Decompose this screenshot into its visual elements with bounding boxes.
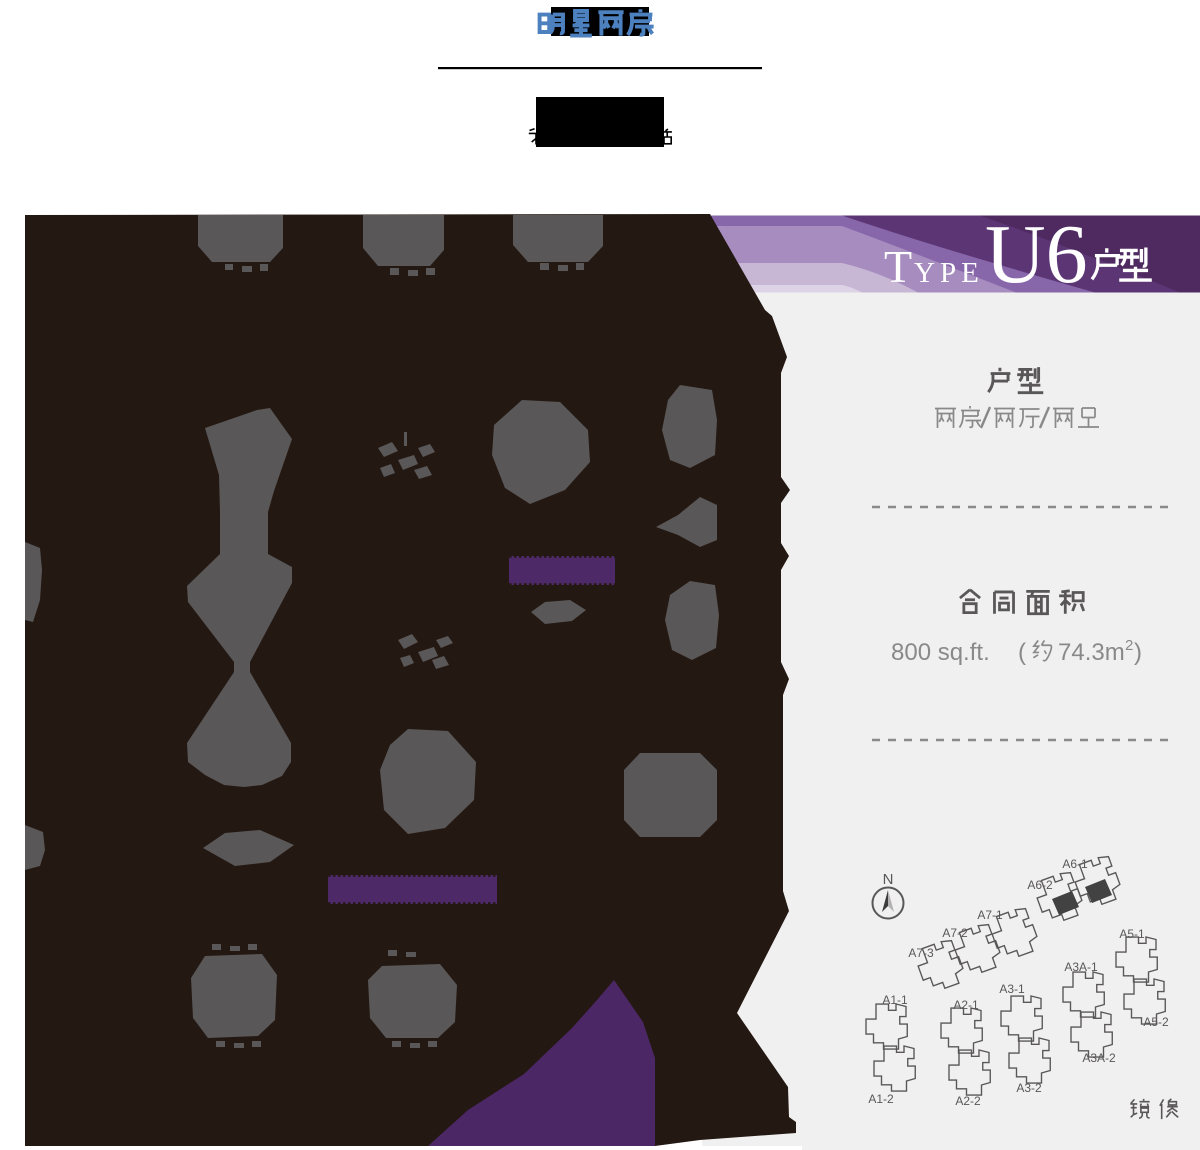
svg-text:A7-3: A7-3 bbox=[908, 946, 934, 960]
svg-text:N: N bbox=[883, 871, 894, 888]
svg-text:A1-2: A1-2 bbox=[868, 1092, 894, 1106]
svg-text:A6-2: A6-2 bbox=[1027, 878, 1053, 892]
svg-text:2: 2 bbox=[1125, 637, 1133, 654]
svg-text:A3-1: A3-1 bbox=[999, 982, 1025, 996]
svg-text:U6: U6 bbox=[985, 208, 1088, 301]
svg-text:74.3m: 74.3m bbox=[1058, 639, 1125, 666]
svg-text:A5-1: A5-1 bbox=[1119, 927, 1145, 941]
svg-text:A7-1: A7-1 bbox=[977, 908, 1003, 922]
svg-text:YPE: YPE bbox=[914, 257, 984, 289]
svg-text:A3-2: A3-2 bbox=[1016, 1081, 1042, 1095]
svg-text:800 sq.ft.: 800 sq.ft. bbox=[891, 639, 990, 666]
svg-text:T: T bbox=[884, 241, 912, 292]
svg-text:A2-1: A2-1 bbox=[953, 998, 979, 1012]
svg-text:A3A-1: A3A-1 bbox=[1064, 960, 1098, 974]
svg-text:(: ( bbox=[1018, 639, 1026, 666]
svg-text:A2-2: A2-2 bbox=[955, 1094, 981, 1108]
svg-text:A7-2: A7-2 bbox=[942, 926, 968, 940]
svg-text:A1-1: A1-1 bbox=[882, 993, 908, 1007]
svg-text:): ) bbox=[1134, 639, 1142, 666]
svg-text:A5-2: A5-2 bbox=[1143, 1015, 1169, 1029]
svg-text:A3A-2: A3A-2 bbox=[1082, 1051, 1116, 1065]
svg-text:A6-1: A6-1 bbox=[1062, 857, 1088, 871]
